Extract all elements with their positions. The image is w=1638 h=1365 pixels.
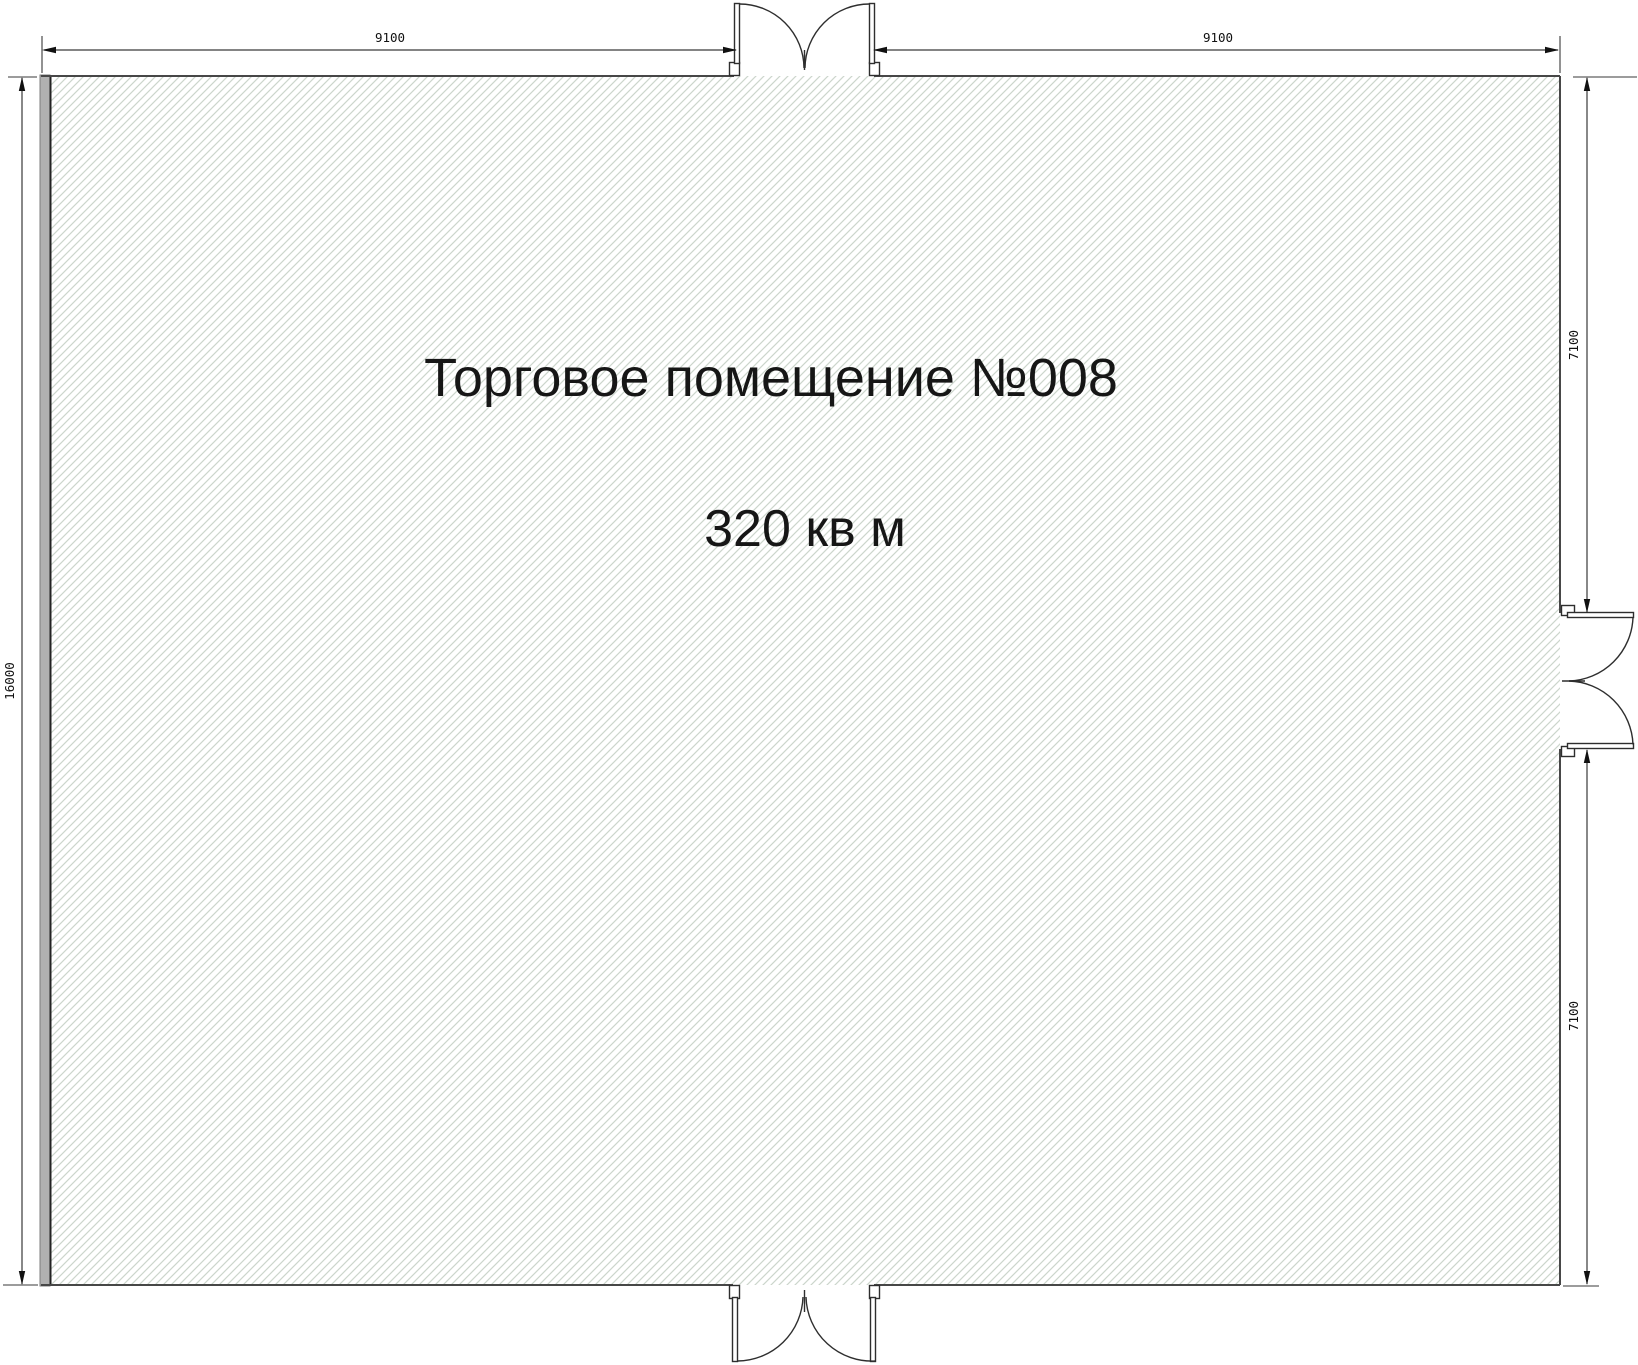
- dim-top-left-arrow-left: [42, 47, 56, 53]
- dim-right-upper-arrow-up: [1584, 77, 1590, 91]
- bottom-door-right-swing-arc: [806, 1297, 876, 1361]
- right-door-bottom-swing-arc: [1569, 681, 1633, 745]
- top-door-double: [730, 4, 880, 76]
- bottom-door-double: [730, 1286, 880, 1362]
- room-area-label: 320 кв м: [704, 500, 906, 558]
- dim-right-upper-arrow-down: [1584, 599, 1590, 613]
- top-door-right-jamb: [870, 63, 880, 76]
- dim-label-right-upper: 7100: [1566, 330, 1581, 360]
- floor-plan-page: 9100 9100 16000 7100 7100 Торговое помещ…: [0, 0, 1638, 1365]
- dim-top-right-arrow-right: [1545, 47, 1559, 53]
- floor-plan-canvas: 9100 9100 16000 7100 7100 Торговое помещ…: [0, 0, 1638, 1365]
- dim-right-lower: 7100: [1563, 749, 1599, 1286]
- top-door-right-leaf: [870, 4, 875, 64]
- top-door-left-swing-arc: [740, 4, 805, 68]
- dim-left-arrow-up: [19, 77, 25, 91]
- right-door-double: [1562, 606, 1634, 757]
- dim-right-lower-arrow-down: [1584, 1271, 1590, 1285]
- bottom-door-right-jamb: [870, 1286, 880, 1299]
- bottom-door-left-swing-arc: [738, 1297, 804, 1361]
- room: [40, 75, 1560, 1286]
- right-door-bottom-leaf: [1568, 744, 1634, 749]
- left-wall: [40, 75, 50, 1286]
- dim-top-right: 9100: [873, 30, 1560, 73]
- dim-label-right-lower: 7100: [1566, 1001, 1581, 1031]
- dim-label-left: 16000: [2, 662, 17, 700]
- dim-left-arrow-down: [19, 1271, 25, 1285]
- dim-right-lower-arrow-up: [1584, 749, 1590, 763]
- top-door-left-leaf: [735, 4, 740, 64]
- bottom-door-left-leaf: [733, 1298, 738, 1362]
- top-door-right-swing-arc: [805, 4, 870, 68]
- right-door-top-swing-arc: [1569, 618, 1633, 682]
- bottom-door-left-jamb: [730, 1286, 740, 1299]
- dim-label-top-right: 9100: [1203, 30, 1233, 45]
- top-door-left-jamb: [730, 63, 740, 76]
- dim-right-upper: 7100: [1566, 77, 1637, 613]
- room-floor-hatch: [50, 76, 1560, 1285]
- bottom-door-right-leaf: [871, 1298, 876, 1362]
- right-door-top-leaf: [1568, 613, 1634, 618]
- dim-top-left: 9100: [42, 30, 737, 73]
- dim-left: 16000: [2, 77, 38, 1285]
- room-title: Торговое помещение №008: [424, 348, 1118, 408]
- dim-label-top-left: 9100: [375, 30, 405, 45]
